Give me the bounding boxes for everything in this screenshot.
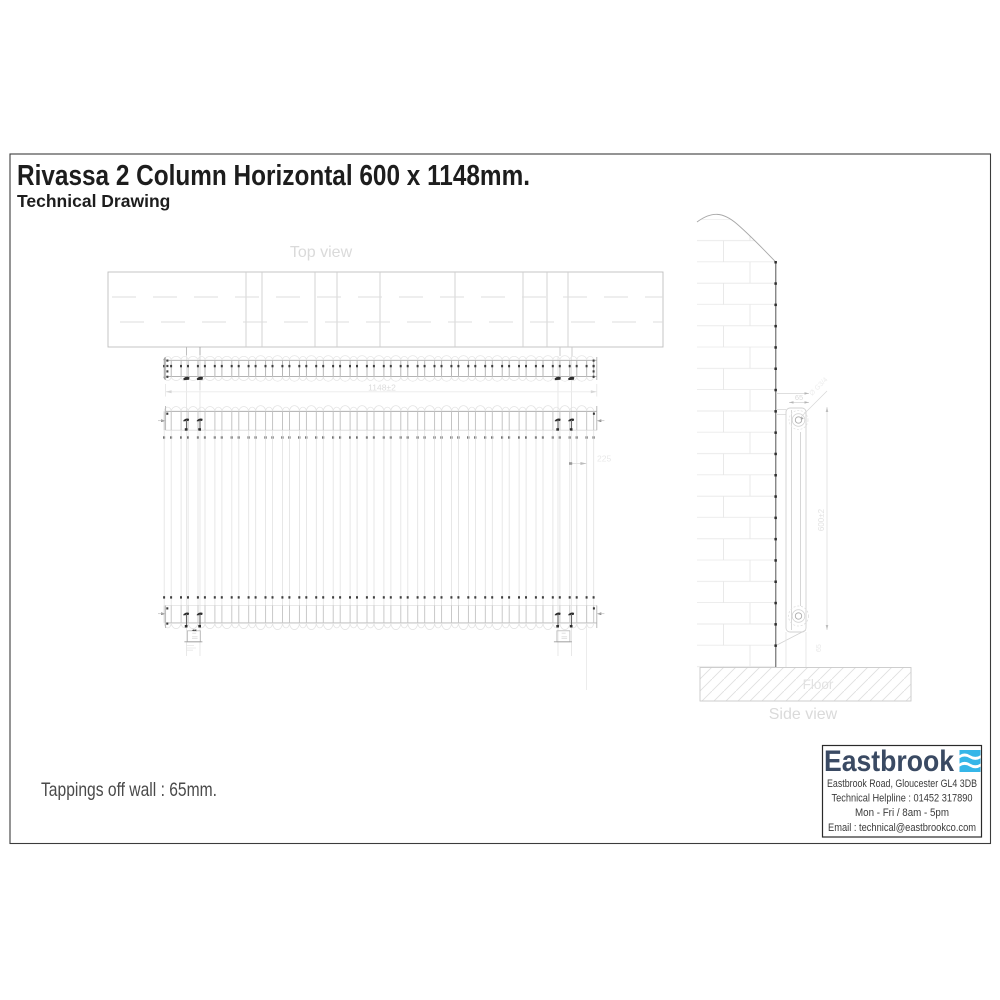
svg-text:65: 65 — [795, 393, 803, 402]
svg-text:Tappings off wall : 65mm.: Tappings off wall : 65mm. — [41, 779, 217, 801]
svg-text:Technical Drawing: Technical Drawing — [17, 191, 170, 211]
svg-text:600±2: 600±2 — [817, 508, 826, 531]
svg-text:Side view: Side view — [769, 706, 838, 723]
svg-text:1148±2: 1148±2 — [368, 383, 396, 393]
svg-text:65: 65 — [816, 644, 823, 652]
svg-text:Mon - Fri / 8am - 5pm: Mon - Fri / 8am - 5pm — [855, 807, 949, 819]
svg-text:Eastbrook Road, Gloucester GL4: Eastbrook Road, Gloucester GL4 3DB — [827, 778, 977, 790]
svg-text:Email : technical@eastbrookco.: Email : technical@eastbrookco.com — [828, 822, 976, 834]
svg-text:Rivassa 2 Column Horizontal 60: Rivassa 2 Column Horizontal 600 x 1148mm… — [17, 160, 530, 192]
svg-text:Eastbrook: Eastbrook — [824, 745, 954, 778]
svg-text:Top view: Top view — [290, 244, 353, 261]
svg-text:Technical Helpline : 01452 317: Technical Helpline : 01452 317890 — [832, 793, 973, 805]
svg-text:Floor: Floor — [803, 677, 834, 692]
svg-text:Ø G3/4: Ø G3/4 — [808, 376, 829, 397]
svg-text:225: 225 — [597, 454, 611, 464]
